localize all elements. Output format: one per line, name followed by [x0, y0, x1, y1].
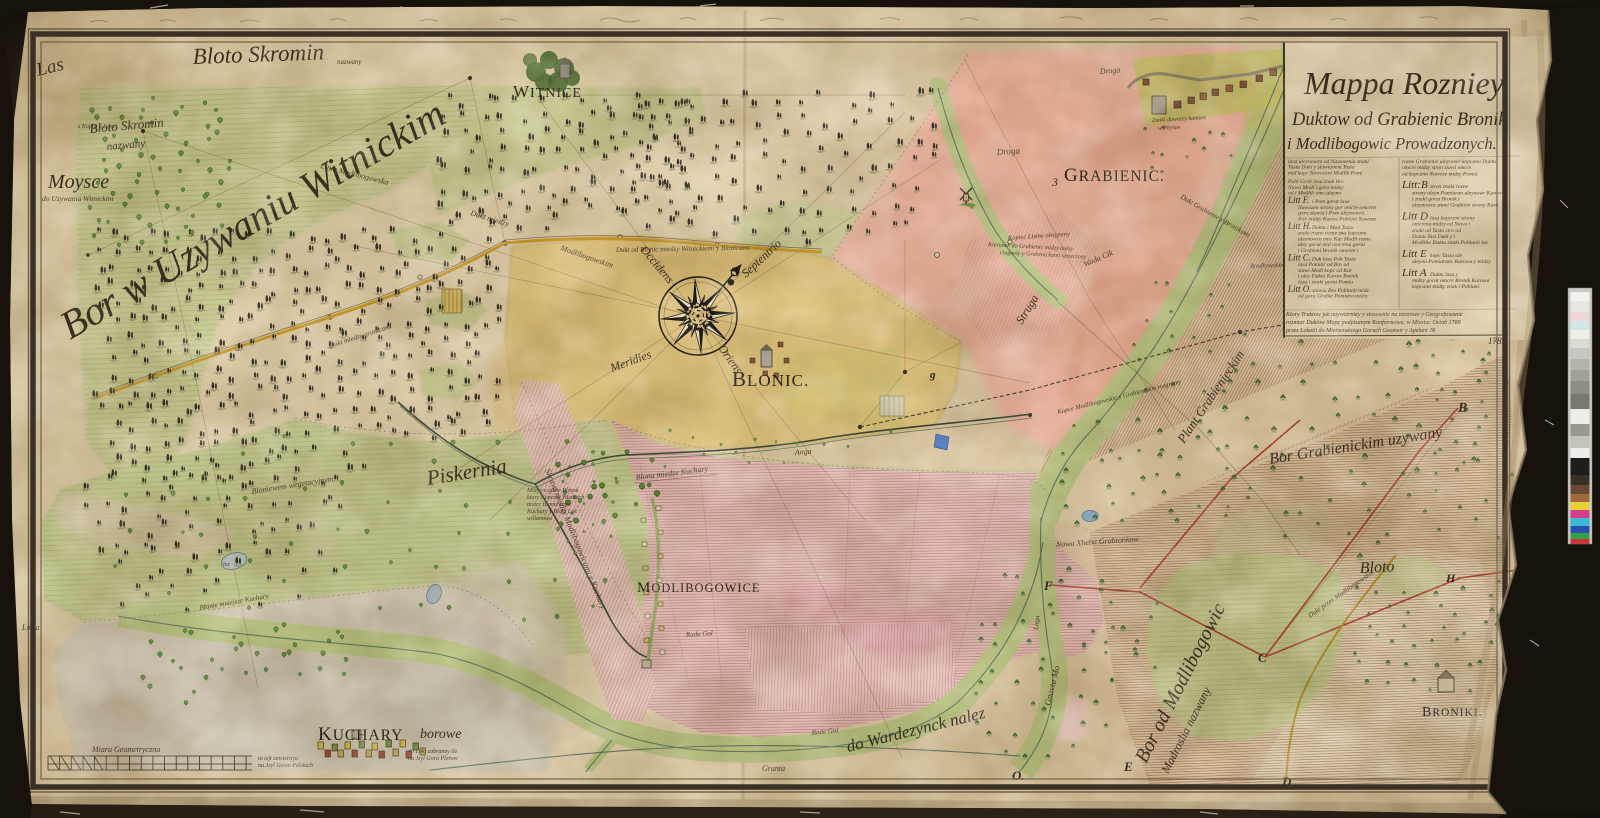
svg-text:KODAK: KODAK — [1585, 460, 1590, 477]
